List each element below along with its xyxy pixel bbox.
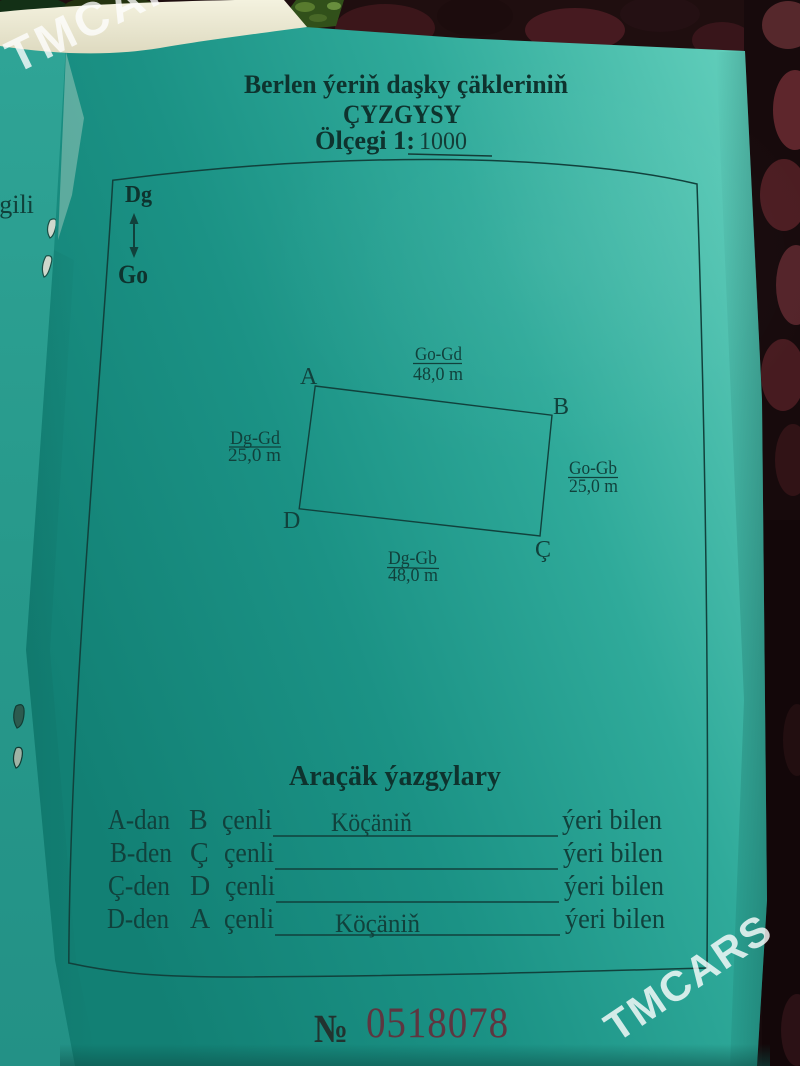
svg-text:Köçäniň: Köçäniň (335, 909, 420, 938)
svg-text:Go-Gd: Go-Gd (415, 344, 462, 365)
svg-text:ýeri bilen: ýeri bilen (564, 871, 664, 902)
svg-text:çenli: çenli (225, 871, 275, 902)
svg-text:ýeri bilen: ýeri bilen (563, 838, 663, 869)
svg-text:ýeri bilen: ýeri bilen (565, 904, 665, 935)
svg-text:Dg: Dg (125, 182, 152, 208)
svg-text:Ölçegi 1:: Ölçegi 1: (315, 126, 415, 155)
svg-text:lgili: lgili (0, 190, 34, 219)
svg-text:D: D (283, 508, 300, 534)
svg-text:25,0 m: 25,0 m (228, 445, 281, 466)
svg-text:25,0 m: 25,0 m (569, 476, 618, 497)
svg-text:48,0 m: 48,0 m (388, 565, 438, 586)
svg-text:B: B (553, 394, 569, 420)
svg-text:çenli: çenli (224, 838, 274, 869)
svg-text:Ç: Ç (535, 537, 551, 563)
svg-text:D: D (190, 871, 210, 902)
svg-text:ÇYZGYSY: ÇYZGYSY (343, 100, 461, 129)
svg-text:çenli: çenli (224, 904, 274, 935)
svg-text:48,0 m: 48,0 m (413, 364, 463, 385)
svg-text:B: B (189, 805, 208, 836)
svg-text:Berlen ýeriň daşky çäkleriniň: Berlen ýeriň daşky çäkleriniň (244, 70, 569, 99)
svg-text:Ç-den: Ç-den (108, 871, 170, 902)
svg-text:Köçäniň: Köçäniň (331, 808, 412, 837)
svg-text:0518078: 0518078 (366, 1000, 509, 1047)
svg-text:A: A (190, 904, 211, 935)
svg-text:Araçäk ýazgylary: Araçäk ýazgylary (289, 761, 501, 792)
svg-text:çenli: çenli (222, 805, 272, 836)
svg-text:№: № (314, 1006, 348, 1051)
svg-text:B-den: B-den (110, 838, 172, 869)
svg-text:A-dan: A-dan (108, 805, 170, 836)
svg-text:A: A (300, 364, 318, 390)
svg-text:Ç: Ç (190, 838, 209, 869)
svg-text:Go: Go (118, 260, 148, 289)
svg-text:D-den: D-den (107, 904, 169, 935)
svg-text:ýeri bilen: ýeri bilen (562, 805, 662, 836)
svg-text:1000: 1000 (419, 128, 467, 155)
